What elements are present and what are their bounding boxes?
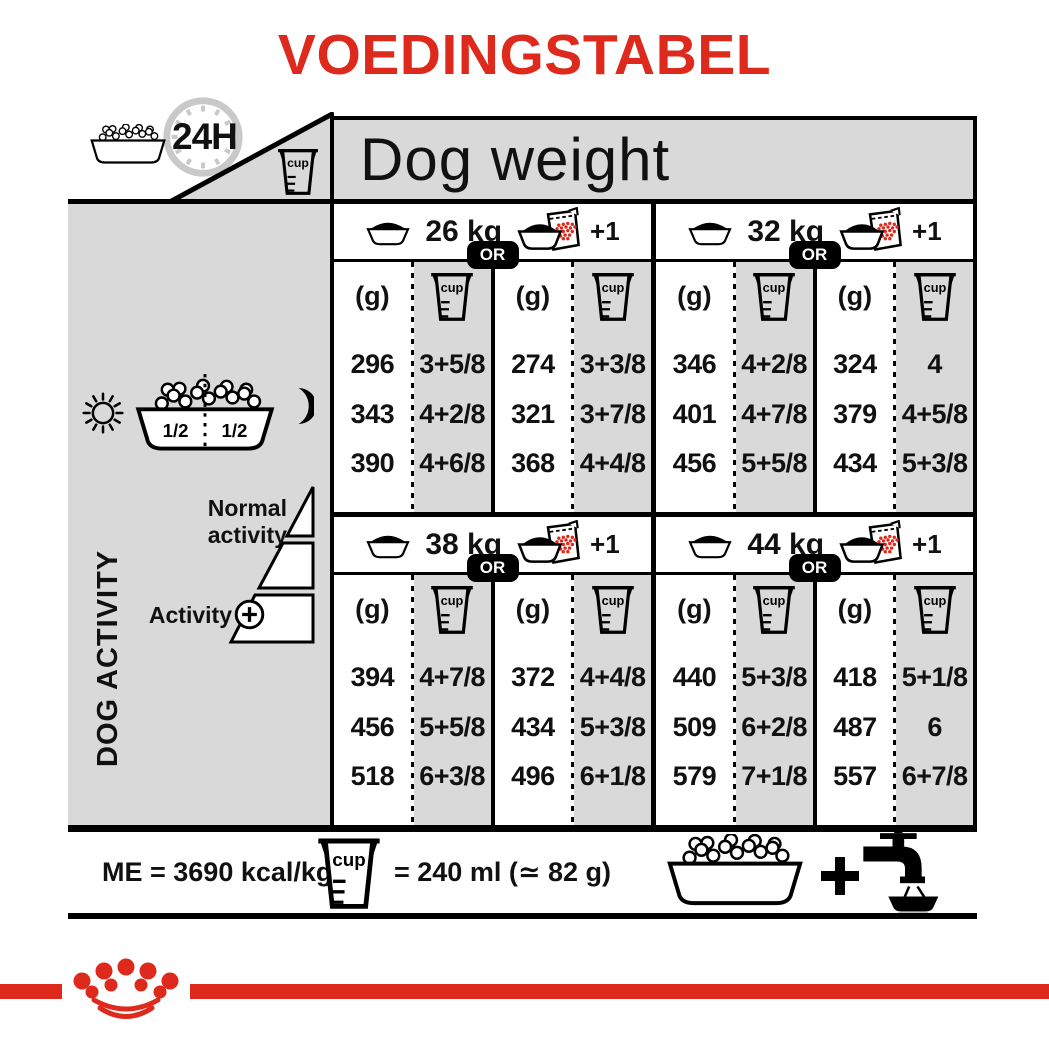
cup-header [736, 575, 813, 643]
cup-value: 6+2/8 [736, 712, 813, 743]
grams-value: 394 [334, 662, 411, 693]
kibble-bowl-icon [84, 124, 172, 168]
cup-value: 5+3/8 [574, 712, 651, 743]
cup-value: 5+5/8 [414, 712, 491, 743]
grams-value: 372 [495, 662, 572, 693]
grams-column: (g) 394 456 518 [334, 575, 411, 825]
cup-values: 5+1/8 6 6+7/8 [896, 643, 973, 825]
cup-value: 4 [896, 349, 973, 380]
grams-value: 557 [817, 761, 894, 792]
grams-values: 296 343 390 [334, 330, 411, 512]
table-band-top: 26 kg +1 OR (g) 296 343 390 [334, 204, 973, 512]
crown-logo [58, 954, 194, 1024]
or-badge: OR [789, 241, 841, 269]
cup-header [414, 262, 491, 330]
cups-column: 4+4/8 5+3/8 6+1/8 [574, 575, 651, 825]
grams-values: 372 434 496 [495, 643, 572, 825]
grams-column: (g) 418 487 557 [817, 575, 894, 825]
bowl-icon [365, 530, 411, 560]
section-body: (g) 346 401 456 4+2/8 4+7/8 5+5 [656, 262, 973, 512]
grams-value: 401 [656, 399, 733, 430]
section-header: 26 kg +1 OR [334, 204, 651, 262]
or-badge: OR [467, 241, 519, 269]
cup-header [574, 575, 651, 643]
grams-column: (g) 440 509 579 [656, 575, 733, 825]
cup-value: 5+3/8 [896, 448, 973, 479]
weight-section-32kg: 32 kg +1 OR (g) 346 401 456 [656, 204, 973, 512]
cup-value: 6+3/8 [414, 761, 491, 792]
cup-header [574, 262, 651, 330]
grams-header: (g) [656, 262, 733, 330]
dog-activity-label: DOG ACTIVITY [92, 489, 125, 827]
grams-value: 496 [495, 761, 572, 792]
cup-value: 4+7/8 [414, 662, 491, 693]
cup-value: 7+1/8 [736, 761, 813, 792]
brand-line-right [190, 984, 1049, 999]
cup-values: 4+2/8 4+7/8 5+5/8 [736, 330, 813, 512]
grams-header: (g) [817, 262, 894, 330]
cup-value: 6 [896, 712, 973, 743]
cup-header [896, 575, 973, 643]
section-header: 32 kg +1 OR [656, 204, 973, 262]
weight-section-38kg: 38 kg +1 OR (g) 394 456 518 [334, 517, 651, 825]
feeding-table: 26 kg +1 OR (g) 296 343 390 [330, 204, 977, 825]
plus-one-label: +1 [590, 216, 620, 247]
cup-value: 3+3/8 [574, 349, 651, 380]
grams-header: (g) [495, 262, 572, 330]
grams-value: 509 [656, 712, 733, 743]
grams-value: 379 [817, 399, 894, 430]
grams-value: 579 [656, 761, 733, 792]
cup-value: 4+2/8 [736, 349, 813, 380]
grams-value: 321 [495, 399, 572, 430]
section-header: 38 kg +1 OR [334, 517, 651, 575]
cup-value: 4+2/8 [414, 399, 491, 430]
grams-column: (g) 274 321 368 [495, 262, 572, 512]
cups-column: 4+2/8 4+7/8 5+5/8 [736, 262, 813, 512]
cup-icon [318, 834, 380, 912]
grams-values: 274 321 368 [495, 330, 572, 512]
footer-top-line [68, 825, 977, 832]
bowl-pack-icon [834, 520, 906, 569]
me-kcal-label: ME = 3690 kcal/kg [102, 832, 332, 913]
plus-one-label: +1 [912, 529, 942, 560]
grams-value: 487 [817, 712, 894, 743]
grams-column: (g) 296 343 390 [334, 262, 411, 512]
section-body: (g) 296 343 390 3+5/8 4+2/8 4+6 [334, 262, 651, 512]
water-tap-icon [860, 828, 940, 915]
grams-value: 456 [656, 448, 733, 479]
dog-weight-title: Dog weight [334, 130, 670, 190]
cup-header [736, 262, 813, 330]
cups-column: 5+3/8 6+2/8 7+1/8 [736, 575, 813, 825]
grams-value: 456 [334, 712, 411, 743]
cup-value: 5+5/8 [736, 448, 813, 479]
half-portions-bowl-icon [126, 372, 284, 478]
cups-column: 5+1/8 6 6+7/8 [896, 575, 973, 825]
bowl-icon [687, 217, 733, 247]
cup-header [896, 262, 973, 330]
cup-icon [278, 146, 318, 197]
activity-label: Activity [98, 602, 232, 629]
grams-header: (g) [334, 575, 411, 643]
grams-values: 394 456 518 [334, 643, 411, 825]
bowl-icon [365, 217, 411, 247]
page-title: VOEDINGSTABEL [0, 22, 1049, 88]
bowl-pack-icon [512, 520, 584, 569]
grams-value: 274 [495, 349, 572, 380]
section-body: (g) 440 509 579 5+3/8 6+2/8 7+1 [656, 575, 973, 825]
feeding-table-page: VOEDINGSTABEL 24H Dog weight DOG ACTIVIT… [0, 0, 1049, 1049]
cup-value: 6+1/8 [574, 761, 651, 792]
grams-header: (g) [817, 575, 894, 643]
plus-circle-icon [233, 598, 266, 631]
grams-value: 296 [334, 349, 411, 380]
dog-weight-header: Dog weight [330, 116, 977, 204]
cups-column: 4 4+5/8 5+3/8 [896, 262, 973, 512]
grams-value: 434 [495, 712, 572, 743]
weight-section-44kg: 44 kg +1 OR (g) 440 509 579 [656, 517, 973, 825]
grams-values: 346 401 456 [656, 330, 733, 512]
grams-column: (g) 372 434 496 [495, 575, 572, 825]
cup-header [414, 575, 491, 643]
grams-values: 324 379 434 [817, 330, 894, 512]
cup-value: 3+5/8 [414, 349, 491, 380]
sun-icon [76, 386, 130, 440]
cup-value: 3+7/8 [574, 399, 651, 430]
cup-value: 5+3/8 [736, 662, 813, 693]
grams-value: 440 [656, 662, 733, 693]
grams-column: (g) 346 401 456 [656, 262, 733, 512]
weight-section-26kg: 26 kg +1 OR (g) 296 343 390 [334, 204, 651, 512]
grams-value: 324 [817, 349, 894, 380]
dog-activity-sidebar: DOG ACTIVITY Normal activity Activity [68, 204, 330, 825]
bowl-pack-icon [834, 207, 906, 256]
plus-one-label: +1 [590, 529, 620, 560]
cup-values: 3+5/8 4+2/8 4+6/8 [414, 330, 491, 512]
cup-values: 3+3/8 3+7/8 4+4/8 [574, 330, 651, 512]
grams-value: 346 [656, 349, 733, 380]
cup-values: 4+4/8 5+3/8 6+1/8 [574, 643, 651, 825]
grams-value: 418 [817, 662, 894, 693]
or-badge: OR [789, 554, 841, 582]
brand-line-left [0, 984, 62, 999]
cup-equivalence-label: = 240 ml (≃ 82 g) [394, 832, 611, 913]
grams-column: (g) 324 379 434 [817, 262, 894, 512]
footer-bottom-line [68, 913, 977, 919]
section-body: (g) 394 456 518 4+7/8 5+5/8 6+3 [334, 575, 651, 825]
kibble-bowl-icon [656, 834, 814, 913]
grams-value: 518 [334, 761, 411, 792]
cups-column: 4+7/8 5+5/8 6+3/8 [414, 575, 491, 825]
section-header: 44 kg +1 OR [656, 517, 973, 575]
grams-values: 418 487 557 [817, 643, 894, 825]
bowl-icon [687, 530, 733, 560]
cup-value: 4+7/8 [736, 399, 813, 430]
grams-value: 343 [334, 399, 411, 430]
cup-values: 5+3/8 6+2/8 7+1/8 [736, 643, 813, 825]
bowl-pack-icon [512, 207, 584, 256]
cup-values: 4 4+5/8 5+3/8 [896, 330, 973, 512]
cup-value: 6+7/8 [896, 761, 973, 792]
grams-values: 440 509 579 [656, 643, 733, 825]
cup-value: 4+5/8 [896, 399, 973, 430]
cup-value: 5+1/8 [896, 662, 973, 693]
or-badge: OR [467, 554, 519, 582]
cup-value: 4+4/8 [574, 448, 651, 479]
cup-values: 4+7/8 5+5/8 6+3/8 [414, 643, 491, 825]
table-band-bottom: 38 kg +1 OR (g) 394 456 518 [334, 517, 973, 825]
moon-icon [278, 386, 314, 426]
cup-value: 4+6/8 [414, 448, 491, 479]
grams-header: (g) [656, 575, 733, 643]
grams-value: 434 [817, 448, 894, 479]
plus-icon [818, 854, 862, 898]
cup-value: 4+4/8 [574, 662, 651, 693]
grams-header: (g) [334, 262, 411, 330]
grams-value: 390 [334, 448, 411, 479]
grams-value: 368 [495, 448, 572, 479]
plus-one-label: +1 [912, 216, 942, 247]
grams-header: (g) [495, 575, 572, 643]
cups-column: 3+3/8 3+7/8 4+4/8 [574, 262, 651, 512]
cups-column: 3+5/8 4+2/8 4+6/8 [414, 262, 491, 512]
